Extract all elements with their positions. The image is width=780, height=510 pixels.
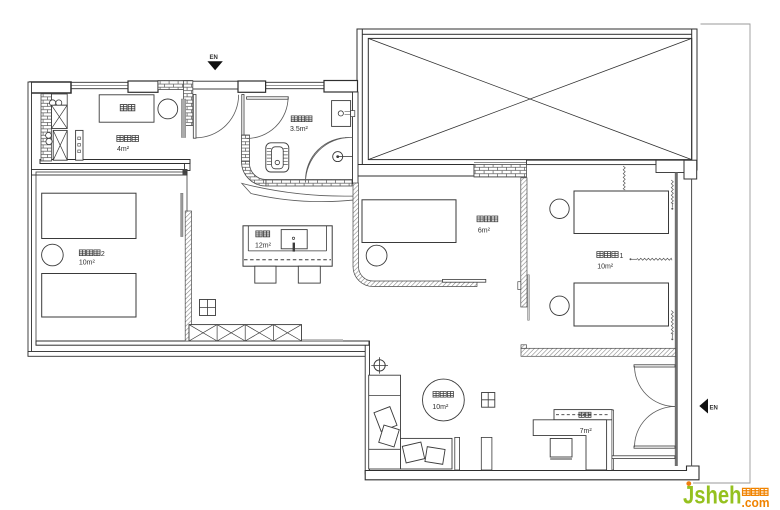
svg-text:1: 1 [620, 253, 624, 260]
svg-text:EN: EN [210, 55, 218, 61]
svg-text:10m²: 10m² [432, 404, 449, 411]
svg-text:7m²: 7m² [580, 428, 593, 435]
svg-text:3.5m²: 3.5m² [290, 126, 309, 133]
svg-text:10m²: 10m² [597, 264, 614, 271]
svg-text:10m²: 10m² [79, 259, 96, 266]
svg-text:.com: .com [742, 496, 770, 510]
svg-text:EN: EN [710, 405, 718, 411]
svg-text:2: 2 [101, 251, 105, 258]
svg-text:Jsheh: Jsheh [683, 482, 742, 510]
svg-text:12m²: 12m² [255, 243, 272, 250]
svg-text:4m²: 4m² [117, 146, 130, 153]
svg-text:6m²: 6m² [478, 228, 491, 235]
